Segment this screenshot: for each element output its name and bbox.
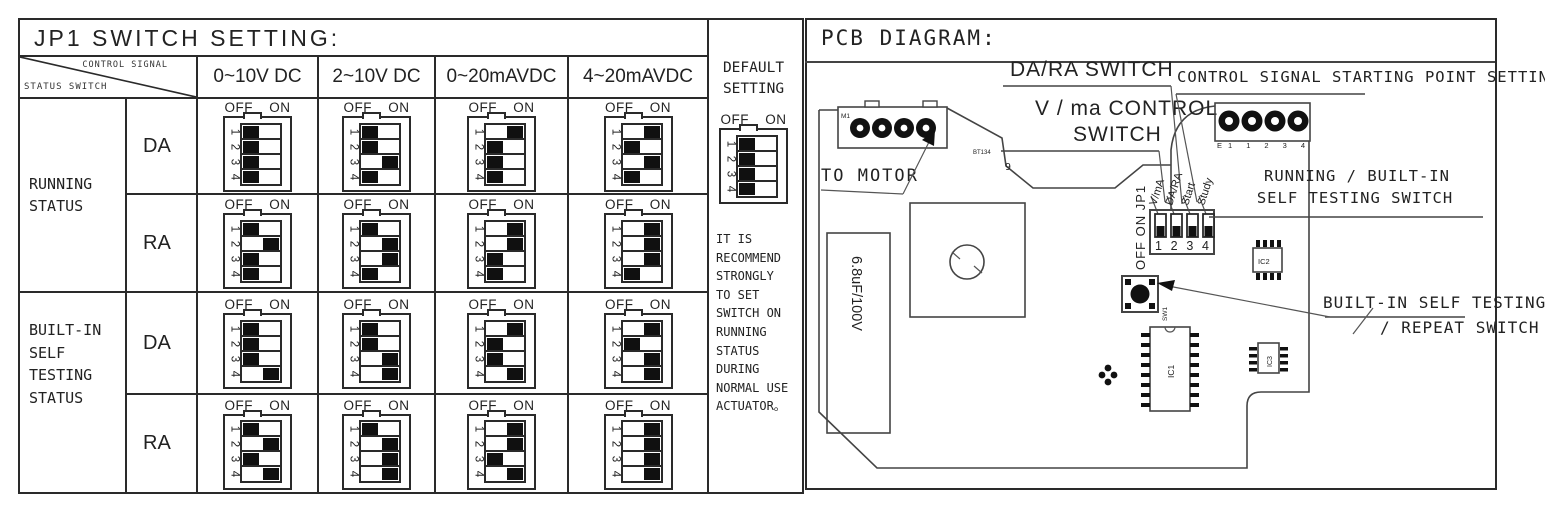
dip-switch-cell: OFFON1234 bbox=[569, 395, 709, 492]
corner-label-status-switch: STATUS SWITCH bbox=[24, 82, 107, 92]
dip-row: 2 bbox=[610, 337, 663, 350]
dip-position-number: 2 bbox=[473, 338, 485, 349]
dip-row: 2 bbox=[473, 140, 526, 153]
diode-cluster-icon bbox=[1099, 365, 1118, 386]
dip-row: 4 bbox=[348, 367, 401, 380]
dip-nub-on bbox=[263, 468, 279, 480]
dip-nub-on bbox=[507, 323, 523, 335]
jp1-position-numbers: 1 2 3 4 bbox=[1155, 239, 1209, 253]
dip-position-number: 4 bbox=[473, 368, 485, 379]
dip-row: 2 bbox=[348, 337, 401, 350]
dip-notch bbox=[739, 124, 758, 131]
dip-row: 4 bbox=[473, 267, 526, 280]
dip-switch-cell: OFFON1234 bbox=[436, 395, 569, 492]
dip-switch-cell: OFFON1234 bbox=[569, 293, 709, 395]
dip-row: 4 bbox=[473, 170, 526, 183]
dip-position-number: 3 bbox=[473, 353, 485, 364]
dip-notch bbox=[362, 112, 381, 119]
dip-row: 1 bbox=[473, 125, 526, 138]
dip-notch bbox=[243, 309, 262, 316]
dip-row: 1 bbox=[473, 423, 526, 436]
dip-row: 3 bbox=[725, 167, 778, 180]
dip-nub-off bbox=[243, 453, 259, 465]
dip-notch bbox=[362, 209, 381, 216]
dip-row: 4 bbox=[229, 267, 282, 280]
dip-notch bbox=[243, 112, 262, 119]
dip-nub-off bbox=[362, 268, 378, 280]
connector-pin-icon bbox=[850, 118, 936, 138]
dip-slider bbox=[359, 365, 401, 383]
jp1-slider-nub-off bbox=[1189, 226, 1197, 237]
dip-nub-off bbox=[243, 223, 259, 235]
dip-body: 1234 bbox=[223, 116, 292, 192]
dip-row: 2 bbox=[610, 438, 663, 451]
default-dip-switch: OFFON1234 bbox=[718, 112, 790, 204]
dip-nub-off bbox=[739, 153, 755, 165]
dip-nub-off bbox=[739, 138, 755, 150]
dip-slider bbox=[484, 365, 526, 383]
dip-switch: OFFON1234 bbox=[222, 100, 294, 192]
dip-nub-off bbox=[487, 171, 503, 183]
board-outline bbox=[819, 110, 1309, 468]
dip-slider bbox=[240, 265, 282, 283]
dip-nub-on bbox=[644, 126, 660, 138]
dip-nub-on bbox=[507, 423, 523, 435]
dip-row: 1 bbox=[610, 222, 663, 235]
dip-position-number: 1 bbox=[229, 424, 241, 435]
table-title: JP1 SWITCH SETTING: bbox=[20, 20, 709, 57]
dip-position-number: 2 bbox=[725, 153, 737, 164]
dip-switch: OFFON1234 bbox=[602, 398, 674, 490]
dip-body: 1234 bbox=[604, 213, 673, 289]
dip-position-number: 2 bbox=[229, 238, 241, 249]
dip-position-number: 1 bbox=[473, 323, 485, 334]
dip-row: 1 bbox=[229, 125, 282, 138]
builtin-repeat-leader bbox=[1163, 285, 1330, 317]
dip-row: 2 bbox=[348, 237, 401, 250]
dip-body: 1234 bbox=[604, 116, 673, 192]
dip-position-number: 3 bbox=[473, 454, 485, 465]
dip-slider bbox=[359, 265, 401, 283]
dip-notch bbox=[362, 309, 381, 316]
dip-notch bbox=[243, 410, 262, 417]
dip-position-number: 1 bbox=[229, 223, 241, 234]
dip-switch: OFFON1234 bbox=[341, 297, 413, 389]
dip-body: 1234 bbox=[342, 116, 411, 192]
dip-position-number: 1 bbox=[725, 138, 737, 149]
dip-position-number: 4 bbox=[609, 368, 621, 379]
dip-notch bbox=[624, 309, 643, 316]
pcb-diagram: M1 TO MOTOR BT134 9 6.8uF/100V DA/RA SWI… bbox=[805, 18, 1545, 490]
dip-body: 1234 bbox=[342, 313, 411, 389]
dip-nub-off bbox=[739, 183, 755, 195]
dip-slider bbox=[621, 168, 663, 186]
jp1-slider-nub-off bbox=[1205, 226, 1213, 237]
dip-position-number: 2 bbox=[348, 238, 360, 249]
dip-row: 4 bbox=[229, 468, 282, 481]
dip-row: 3 bbox=[348, 352, 401, 365]
dip-nub-on bbox=[382, 453, 398, 465]
dip-position-number: 4 bbox=[348, 171, 360, 182]
dip-row: 4 bbox=[610, 267, 663, 280]
terminal-block: E1 1 2 3 4 bbox=[1215, 103, 1310, 150]
dip-switch: OFFON1234 bbox=[341, 100, 413, 192]
dip-position-number: 4 bbox=[609, 171, 621, 182]
dip-position-number: 3 bbox=[609, 353, 621, 364]
dip-position-number: 1 bbox=[609, 223, 621, 234]
dip-switch-cell: OFFON1234 bbox=[319, 293, 436, 395]
dip-position-number: 2 bbox=[229, 439, 241, 450]
dip-switch: OFFON1234 bbox=[466, 197, 538, 289]
dip-nub-off bbox=[487, 353, 503, 365]
dip-nub-on bbox=[644, 453, 660, 465]
dip-notch bbox=[487, 209, 506, 216]
dip-row: 3 bbox=[610, 155, 663, 168]
dip-row: 2 bbox=[348, 438, 401, 451]
dip-nub-on bbox=[644, 323, 660, 335]
dip-nub-off bbox=[362, 338, 378, 350]
connector-ref-label: M1 bbox=[841, 113, 850, 120]
dip-switch: OFFON1234 bbox=[466, 398, 538, 490]
dip-body: 1234 bbox=[604, 313, 673, 389]
dip-position-number: 1 bbox=[609, 126, 621, 137]
dip-switch: OFFON1234 bbox=[602, 197, 674, 289]
dip-position-number: 4 bbox=[473, 268, 485, 279]
dip-nub-off bbox=[487, 141, 503, 153]
dip-position-number: 3 bbox=[229, 353, 241, 364]
dip-notch bbox=[487, 112, 506, 119]
dip-switch: OFFON1234 bbox=[602, 100, 674, 192]
dip-nub-on bbox=[382, 253, 398, 265]
dip-slider bbox=[359, 465, 401, 483]
dip-row: 3 bbox=[229, 453, 282, 466]
dip-body: 1234 bbox=[342, 414, 411, 490]
dip-position-number: 1 bbox=[473, 223, 485, 234]
capacitor: 6.8uF/100V bbox=[827, 233, 890, 433]
dip-position-number: 3 bbox=[609, 454, 621, 465]
dip-nub-on bbox=[507, 126, 523, 138]
dip-position-number: 2 bbox=[473, 141, 485, 152]
dip-nub-off bbox=[243, 323, 259, 335]
dip-row: 2 bbox=[473, 237, 526, 250]
dip-position-number: 2 bbox=[348, 439, 360, 450]
dip-position-number: 2 bbox=[473, 439, 485, 450]
corner-label-control-signal: CONTROL SIGNAL bbox=[82, 60, 168, 70]
dip-nub-off bbox=[243, 353, 259, 365]
dip-position-number: 1 bbox=[609, 424, 621, 435]
dip-position-number: 4 bbox=[348, 368, 360, 379]
dip-position-number: 2 bbox=[609, 338, 621, 349]
dip-slider bbox=[240, 168, 282, 186]
dip-nub-on bbox=[644, 438, 660, 450]
jp1-slider-nub-off bbox=[1173, 226, 1181, 237]
dip-nub-on bbox=[507, 238, 523, 250]
dip-body: 1234 bbox=[342, 213, 411, 289]
dip-switch: OFFON1234 bbox=[222, 398, 294, 490]
dip-row: 2 bbox=[473, 337, 526, 350]
dip-row: 3 bbox=[610, 453, 663, 466]
dip-slider bbox=[621, 365, 663, 383]
mode-label-ra: RA bbox=[127, 195, 198, 293]
dip-position-number: 2 bbox=[229, 141, 241, 152]
dip-position-number: 4 bbox=[229, 469, 241, 480]
dip-nub-on bbox=[644, 238, 660, 250]
dip-row: 3 bbox=[348, 453, 401, 466]
ic3-chip: IC3 bbox=[1249, 343, 1288, 373]
board-outline-notch bbox=[947, 108, 1171, 188]
dip-notch bbox=[362, 410, 381, 417]
dip-position-number: 3 bbox=[609, 156, 621, 167]
dip-position-number: 4 bbox=[229, 368, 241, 379]
row-group-builtin-self-testing: BUILT-IN SELF TESTING STATUS bbox=[20, 293, 127, 492]
dip-position-number: 2 bbox=[609, 238, 621, 249]
dip-nub-off bbox=[243, 423, 259, 435]
dip-body: 1234 bbox=[223, 414, 292, 490]
mode-label-ra: RA bbox=[127, 395, 198, 492]
dip-slider bbox=[484, 265, 526, 283]
dip-switch-cell: OFFON1234 bbox=[319, 395, 436, 492]
dip-nub-off bbox=[243, 141, 259, 153]
jp1-sliders bbox=[1155, 214, 1214, 237]
dip-row: 4 bbox=[610, 170, 663, 183]
dip-row: 3 bbox=[473, 155, 526, 168]
dip-position-number: 2 bbox=[348, 141, 360, 152]
builtin-repeat-label-1: BUILT-IN SELF TESTING bbox=[1323, 293, 1545, 312]
dip-position-number: 3 bbox=[229, 253, 241, 264]
row-group-running-status: RUNNING STATUS bbox=[20, 99, 127, 293]
recommendation-note: IT IS RECOMMEND STRONGLY TO SET SWITCH O… bbox=[709, 230, 788, 416]
ic3-label: IC3 bbox=[1267, 356, 1274, 367]
table-corner-cell: CONTROL SIGNAL STATUS SWITCH bbox=[20, 57, 198, 99]
dip-row: 1 bbox=[348, 125, 401, 138]
dip-row: 3 bbox=[348, 155, 401, 168]
dip-position-number: 3 bbox=[609, 253, 621, 264]
dip-row: 2 bbox=[229, 337, 282, 350]
button-cap-icon bbox=[1131, 285, 1150, 304]
dip-notch bbox=[624, 209, 643, 216]
dip-position-number: 1 bbox=[229, 323, 241, 334]
dip-slider bbox=[484, 465, 526, 483]
dip-nub-off bbox=[243, 253, 259, 265]
to-motor-label: TO MOTOR bbox=[821, 166, 919, 186]
dip-switch-cell: OFFON1234 bbox=[198, 99, 319, 195]
ic2-chip: IC2 bbox=[1253, 240, 1282, 280]
dip-position-number: 3 bbox=[473, 156, 485, 167]
dip-nub-off bbox=[362, 323, 378, 335]
dip-nub-off bbox=[624, 268, 640, 280]
dip-body: 1234 bbox=[223, 213, 292, 289]
dip-row: 3 bbox=[229, 352, 282, 365]
dip-nub-on bbox=[382, 238, 398, 250]
dip-position-number: 3 bbox=[348, 454, 360, 465]
v-ma-switch-label-1: V / ma CONTROL bbox=[1035, 97, 1218, 120]
signal-header-0-20ma: 0~20mAVDC bbox=[436, 57, 569, 99]
dip-row: 2 bbox=[725, 152, 778, 165]
dip-nub-off bbox=[362, 223, 378, 235]
dip-nub-on bbox=[507, 223, 523, 235]
v-ma-switch-label-2: SWITCH bbox=[1073, 123, 1162, 146]
dip-position-number: 1 bbox=[348, 223, 360, 234]
dip-nub-on bbox=[644, 156, 660, 168]
dip-row: 4 bbox=[473, 468, 526, 481]
dip-body: 1234 bbox=[467, 414, 536, 490]
dip-row: 1 bbox=[348, 322, 401, 335]
terminal-pin-numbers: E1 1 2 3 4 bbox=[1217, 141, 1305, 150]
dip-nub-off bbox=[243, 171, 259, 183]
dip-position-number: 4 bbox=[725, 183, 737, 194]
dip-row: 4 bbox=[348, 267, 401, 280]
dip-position-number: 1 bbox=[348, 323, 360, 334]
dip-position-number: 2 bbox=[473, 238, 485, 249]
dip-switch-cell: OFFON1234 bbox=[319, 195, 436, 293]
dip-row: 4 bbox=[348, 170, 401, 183]
dip-slider bbox=[359, 168, 401, 186]
dip-slider bbox=[240, 465, 282, 483]
dip-row: 1 bbox=[473, 222, 526, 235]
dip-switch-cell: OFFON1234 bbox=[198, 293, 319, 395]
dip-slider bbox=[621, 465, 663, 483]
dip-nub-off bbox=[243, 156, 259, 168]
dip-row: 3 bbox=[610, 352, 663, 365]
dip-position-number: 4 bbox=[473, 469, 485, 480]
dip-position-number: 2 bbox=[609, 141, 621, 152]
dip-position-number: 3 bbox=[229, 454, 241, 465]
mode-label-da: DA bbox=[127, 99, 198, 195]
jp1-off-on-label: OFF ON JP1 bbox=[1133, 185, 1148, 270]
dip-nub-off bbox=[487, 453, 503, 465]
dip-position-number: 1 bbox=[609, 323, 621, 334]
dip-position-number: 4 bbox=[609, 469, 621, 480]
dip-switch-cell: OFFON1234 bbox=[569, 99, 709, 195]
dip-nub-off bbox=[487, 156, 503, 168]
dip-slider bbox=[484, 168, 526, 186]
dip-switch: OFFON1234 bbox=[466, 100, 538, 192]
dip-nub-off bbox=[243, 268, 259, 280]
dip-row: 3 bbox=[610, 252, 663, 265]
dip-body: 1234 bbox=[467, 213, 536, 289]
terminal-pin-icon bbox=[1219, 111, 1309, 132]
dip-position-number: 3 bbox=[348, 253, 360, 264]
dip-switch-cell: OFFON1234 bbox=[198, 195, 319, 293]
dip-nub-off bbox=[487, 253, 503, 265]
dip-nub-on bbox=[507, 468, 523, 480]
dip-nub-off bbox=[624, 141, 640, 153]
dip-row: 4 bbox=[610, 367, 663, 380]
dip-switch: OFFON1234 bbox=[341, 197, 413, 289]
dip-row: 1 bbox=[348, 222, 401, 235]
dip-position-number: 4 bbox=[348, 469, 360, 480]
dip-row: 1 bbox=[610, 423, 663, 436]
dip-row: 4 bbox=[229, 170, 282, 183]
dip-nub-on bbox=[382, 368, 398, 380]
dip-row: 4 bbox=[610, 468, 663, 481]
signal-header-4-20ma: 4~20mAVDC bbox=[569, 57, 709, 99]
dip-position-number: 3 bbox=[348, 353, 360, 364]
dip-row: 2 bbox=[229, 140, 282, 153]
dip-switch-cell: OFFON1234 bbox=[569, 195, 709, 293]
dip-nub-on bbox=[644, 368, 660, 380]
dip-slider bbox=[240, 365, 282, 383]
dip-position-number: 2 bbox=[348, 338, 360, 349]
dip-switch-cell: OFFON1234 bbox=[436, 195, 569, 293]
dip-row: 1 bbox=[348, 423, 401, 436]
signal-header-0-10v: 0~10V DC bbox=[198, 57, 319, 99]
dip-position-number: 4 bbox=[348, 268, 360, 279]
dip-switch: OFFON1234 bbox=[341, 398, 413, 490]
dip-nub-on bbox=[382, 438, 398, 450]
dip-position-number: 3 bbox=[725, 168, 737, 179]
jp1-slider-nub-off bbox=[1157, 226, 1165, 237]
dip-row: 3 bbox=[473, 352, 526, 365]
pin9-label: 9 bbox=[1005, 162, 1011, 173]
dip-row: 2 bbox=[473, 438, 526, 451]
dip-position-number: 4 bbox=[609, 268, 621, 279]
dip-row: 1 bbox=[725, 137, 778, 150]
da-ra-switch-label: DA/RA SWITCH bbox=[1010, 58, 1174, 81]
dip-row: 3 bbox=[348, 252, 401, 265]
dip-slider bbox=[736, 180, 778, 198]
dip-nub-on bbox=[644, 353, 660, 365]
dip-switch-cell: OFFON1234 bbox=[198, 395, 319, 492]
dip-position-number: 1 bbox=[473, 126, 485, 137]
dip-row: 1 bbox=[229, 322, 282, 335]
dip-position-number: 1 bbox=[229, 126, 241, 137]
dip-row: 1 bbox=[473, 322, 526, 335]
dip-nub-off bbox=[362, 141, 378, 153]
dip-nub-on bbox=[507, 438, 523, 450]
dip-row: 3 bbox=[473, 453, 526, 466]
capacitor-value-label: 6.8uF/100V bbox=[848, 256, 864, 331]
default-setting-title: DEFAULT SETTING bbox=[723, 58, 784, 100]
dip-nub-off bbox=[362, 423, 378, 435]
dip-notch bbox=[624, 410, 643, 417]
dip-nub-off bbox=[362, 171, 378, 183]
dip-body: 1234 bbox=[223, 313, 292, 389]
ic2-label: IC2 bbox=[1258, 257, 1270, 266]
dip-nub-on bbox=[263, 438, 279, 450]
dip-nub-on bbox=[263, 238, 279, 250]
dip-nub-on bbox=[644, 223, 660, 235]
dip-row: 3 bbox=[229, 155, 282, 168]
dip-slider bbox=[621, 265, 663, 283]
builtin-repeat-label-2: / REPEAT SWITCH bbox=[1380, 318, 1540, 337]
dip-position-number: 3 bbox=[473, 253, 485, 264]
dip-position-number: 1 bbox=[348, 424, 360, 435]
dip-nub-off bbox=[624, 171, 640, 183]
dip-notch bbox=[243, 209, 262, 216]
dip-row: 2 bbox=[610, 140, 663, 153]
dip-nub-on bbox=[644, 423, 660, 435]
dip-nub-off bbox=[487, 268, 503, 280]
dip-position-number: 1 bbox=[473, 424, 485, 435]
dip-row: 3 bbox=[229, 252, 282, 265]
dip-nub-off bbox=[487, 338, 503, 350]
mode-label-da: DA bbox=[127, 293, 198, 395]
dip-nub-on bbox=[507, 368, 523, 380]
builtin-repeat-arrowhead-icon bbox=[1157, 280, 1175, 291]
dip-switch-cell: OFFON1234 bbox=[436, 99, 569, 195]
dip-nub-off bbox=[362, 126, 378, 138]
dip-switch: OFFON1234 bbox=[222, 197, 294, 289]
dip-row: 1 bbox=[610, 125, 663, 138]
signal-header-2-10v: 2~10V DC bbox=[319, 57, 436, 99]
sw1-label: SW1 bbox=[1162, 307, 1169, 321]
dip-nub-off bbox=[243, 338, 259, 350]
dip-row: 4 bbox=[348, 468, 401, 481]
dip-body: 1234 bbox=[467, 116, 536, 192]
dip-row: 3 bbox=[473, 252, 526, 265]
dip-switch: OFFON1234 bbox=[466, 297, 538, 389]
